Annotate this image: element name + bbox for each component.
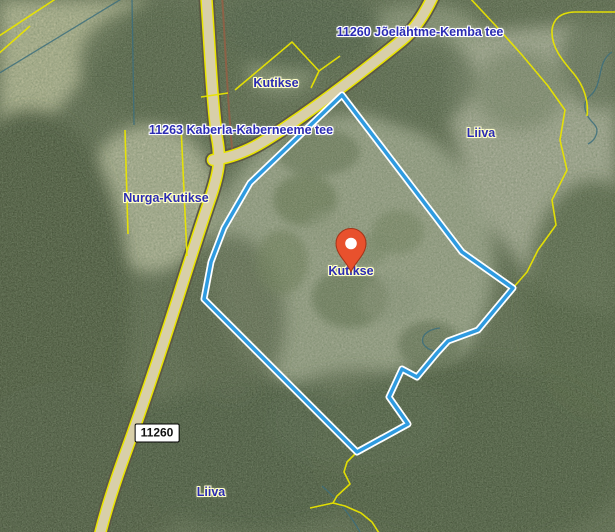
road-number-badge: 11260 bbox=[135, 424, 180, 443]
road-label-kaberla-kaberneeme: 11263 Kaberla-Kaberneeme tee bbox=[149, 123, 333, 137]
aerial-basemap[interactable] bbox=[0, 0, 615, 532]
parcel-label-liiva-right: Liiva bbox=[467, 126, 496, 140]
location-marker-icon[interactable] bbox=[331, 226, 371, 274]
parcel-label-nurga-kutikse: Nurga-Kutikse bbox=[123, 191, 208, 205]
road-label-joelahtme-kemba: 11260 Jõelähtme-Kemba tee bbox=[337, 25, 504, 39]
parcel-label-liiva-bottom: Liiva bbox=[197, 485, 226, 499]
parcel-label-kutikse-top: Kutikse bbox=[253, 76, 298, 90]
map-viewport[interactable]: 11260 Jõelähtme-Kemba tee Kutikse 11263 … bbox=[0, 0, 615, 532]
terrain bbox=[0, 0, 615, 532]
